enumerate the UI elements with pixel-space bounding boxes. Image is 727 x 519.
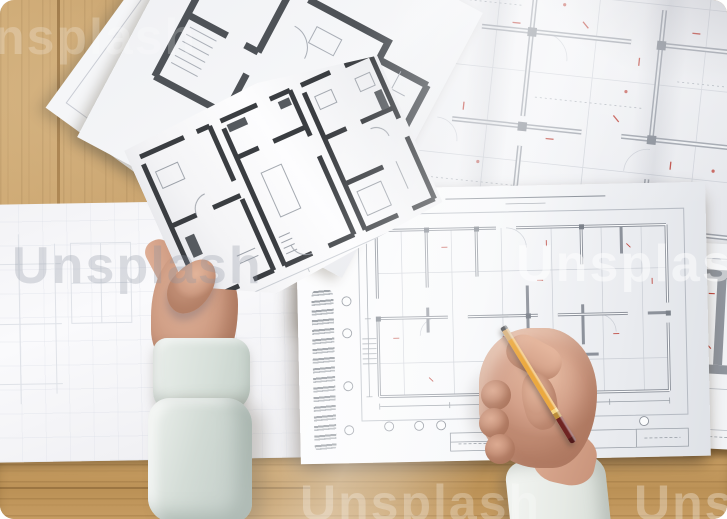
- finger-knuckle: [485, 434, 515, 464]
- photo-architect-desk: Unsplash Unsplash Unsplash Unsplash Unsp…: [0, 0, 727, 519]
- finger-knuckle: [481, 380, 511, 410]
- right-hand: [479, 328, 597, 468]
- finger-knuckle: [479, 408, 509, 438]
- left-sleeve: [148, 398, 252, 519]
